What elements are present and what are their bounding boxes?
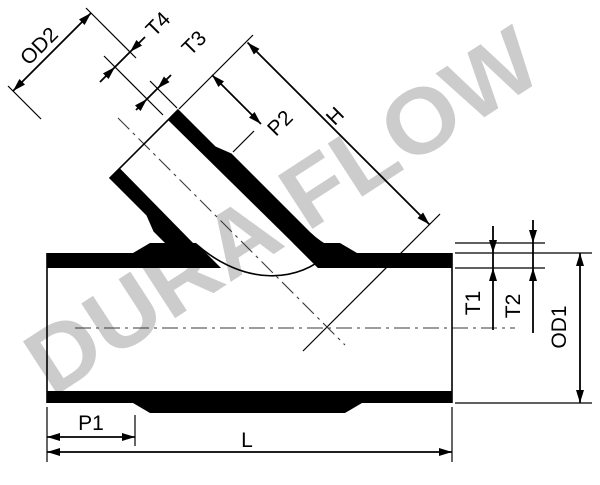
p2-label: P2 [263, 106, 297, 140]
t1-arrowhead-bottom [489, 268, 497, 281]
od2-extension-right [86, 8, 136, 58]
technical-drawing-canvas: DURA FLOW OD2 T4 [0, 0, 600, 485]
l-label: L [241, 429, 253, 452]
t3-label: T3 [178, 27, 212, 61]
t2-label: T2 [502, 294, 525, 319]
dim-od1: OD1 [548, 253, 584, 403]
dim-t2: T2 [502, 220, 537, 333]
t2-arrowhead-bottom [529, 268, 537, 281]
od1-label: OD1 [548, 305, 571, 348]
p1-arrowhead-left [47, 433, 60, 441]
t2-arrowhead-top [529, 230, 537, 243]
pipe-bottom-wall [47, 391, 452, 413]
p1-label: P1 [78, 412, 104, 435]
dim-l: L [47, 429, 452, 456]
p2-extension-lower [233, 131, 254, 152]
p1-arrowhead-right [122, 433, 135, 441]
od1-arrowhead-top [576, 253, 584, 266]
dim-t1: T1 [462, 226, 497, 330]
t4-label: T4 [142, 7, 176, 41]
dim-p1: P1 [47, 412, 135, 441]
od1-arrowhead-bottom [576, 390, 584, 403]
dim-od2: OD2 [13, 13, 91, 91]
dim-t4: T4 [100, 7, 175, 82]
dim-p2: P2 [212, 75, 298, 141]
dim-t3: T3 [135, 27, 211, 111]
l-arrowhead-left [47, 448, 60, 456]
fitting-diagram: DURA FLOW OD2 T4 [0, 0, 600, 485]
l-arrowhead-right [439, 448, 452, 456]
t1-label: T1 [462, 291, 485, 316]
od2-label: OD2 [16, 23, 63, 70]
t1-arrowhead-top [489, 240, 497, 253]
